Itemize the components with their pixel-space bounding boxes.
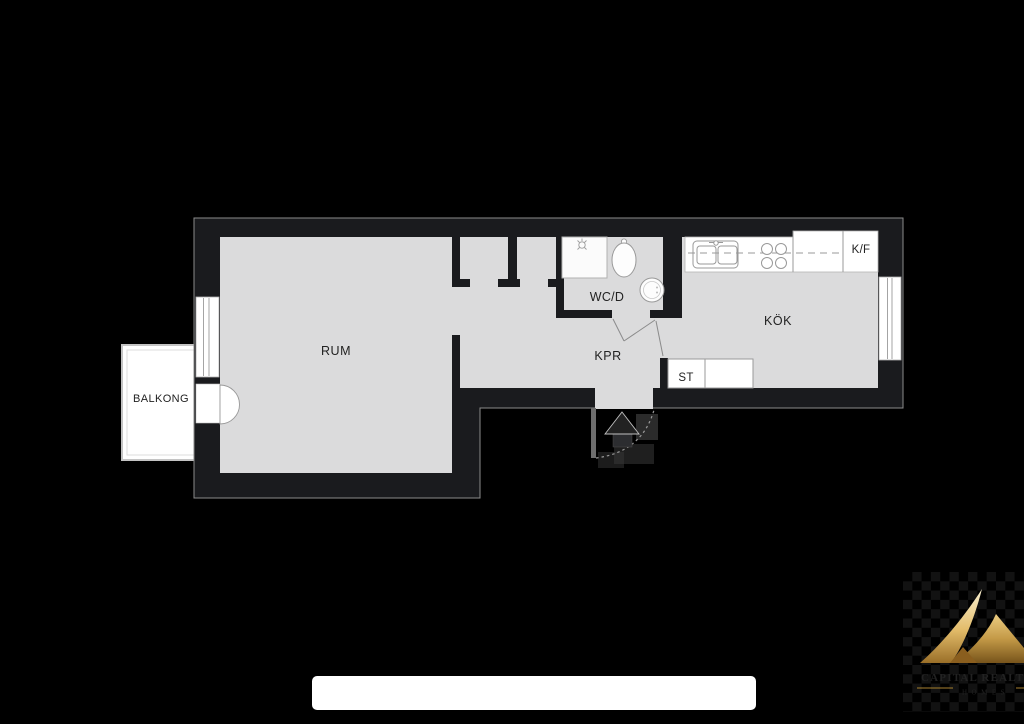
room-label-balkong: BALKONG — [133, 393, 189, 405]
room-label-st: ST — [678, 372, 693, 384]
room-label-kpr: KPR — [594, 349, 621, 363]
redacted-address-bar — [312, 676, 756, 710]
agency-logo: CAPITAL REALTY HOMES — [917, 589, 1024, 697]
logo-tagline: HOMES — [962, 689, 1009, 697]
room-label-kok: KÖK — [764, 314, 792, 328]
washing-machine-icon — [640, 278, 664, 302]
north-arrow-icon — [605, 412, 639, 447]
entrance-door-leaf — [591, 408, 596, 458]
window-right — [879, 277, 901, 360]
room-label-rum: RUM — [321, 344, 351, 358]
room-doorway — [452, 287, 460, 335]
entrance-opening — [595, 386, 653, 409]
room-label-wcd: WC/D — [590, 290, 625, 304]
room-label-kf: K/F — [852, 244, 871, 256]
balcony-door — [196, 384, 240, 424]
floor-plan-canvas: RUM KÖK KPR WC/D ST K/F BALKONG CAPITAL … — [0, 0, 1024, 724]
shower — [562, 237, 607, 278]
window-left — [196, 297, 219, 377]
logo-name: CAPITAL REALTY — [921, 672, 1024, 684]
floor-plan-page: RUM KÖK KPR WC/D ST K/F BALKONG CAPITAL … — [0, 0, 1024, 724]
